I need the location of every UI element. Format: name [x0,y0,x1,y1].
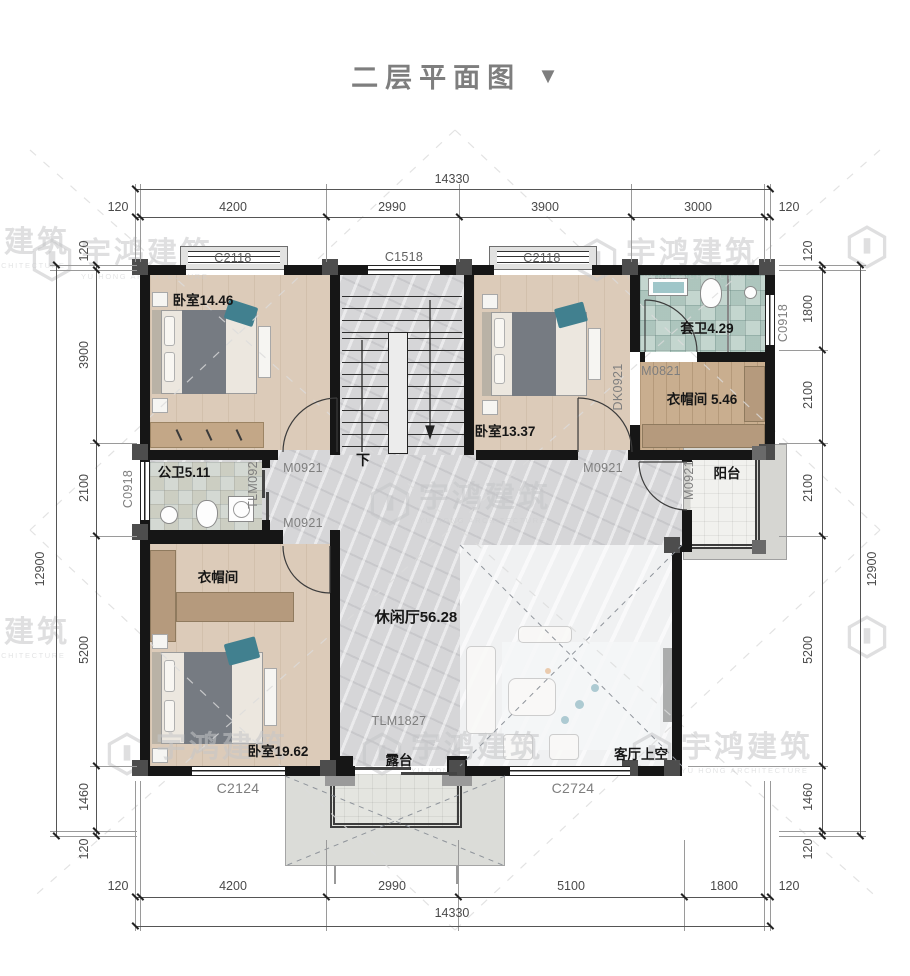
floor-plan-sheet: 二层平面图 ▼ [0,0,910,976]
dim-line [135,189,770,190]
dim-bottom-5: 120 [759,879,819,893]
dim-ext [779,536,828,537]
bed-headboard [482,312,491,396]
dim-bottom-overall: 14330 [412,906,492,920]
dim-line [135,217,770,218]
dim-left-0: 120 [77,221,91,281]
shower-partition [727,275,729,352]
terrace-step-line [334,866,336,884]
dim-ext [50,836,137,837]
sink [648,278,688,296]
wall [262,455,270,468]
dim-top-1: 4200 [203,200,263,214]
wall [140,520,150,776]
column [132,760,148,776]
dim-line [860,265,861,836]
triangle-down-icon: ▼ [537,63,559,89]
room-label-closet-right: 衣帽间 5.46 [642,388,762,408]
wall [476,450,578,460]
dim-top-overall: 14330 [412,172,492,186]
nightstand [482,400,498,415]
label-c2724: C2724 [513,780,633,796]
column [132,524,148,540]
label-tlm1827: TLM1827 [339,714,459,728]
dim-left-4: 1460 [77,767,91,827]
dim-ext [135,781,136,931]
label-m0921-master: M0921 [281,516,325,530]
dim-ext [326,184,327,262]
label-c0918-left: C0918 [121,459,135,519]
dim-right-0: 120 [801,221,815,281]
sliding-door-tlm0921 [266,492,269,520]
dim-ext [140,184,141,262]
sink [160,506,178,524]
bed-pillow [164,316,175,346]
brand-text: 宇鸿建筑YU HONG ARCHITECTURE [0,618,70,660]
dim-right-1: 1800 [801,279,815,339]
dim-right-4: 5200 [801,620,815,680]
void-overlay [460,545,672,766]
dim-top-2: 2990 [362,200,422,214]
label-c1518: C1518 [364,250,444,264]
dim-line [135,897,770,898]
column [132,444,148,460]
dim-bottom-2: 2990 [362,879,422,893]
bed-headboard [152,652,161,744]
bed-pillow [164,660,175,692]
wall [630,265,640,352]
balcony-post [752,540,766,554]
wall [262,520,270,536]
dim-bottom-4: 1800 [694,879,754,893]
bed-headboard [152,310,161,394]
balcony-post [752,446,766,460]
dim-right-6: 120 [801,819,815,879]
nightstand [152,398,168,413]
bed-bench [264,668,277,726]
column [759,259,775,275]
room-label-bedroom-tl: 卧室14.46 [143,289,263,309]
wall [640,352,645,362]
label-m0921-bedroom-tl: M0921 [281,461,325,475]
dim-bottom-0: 120 [88,879,148,893]
bed-pillow [164,700,175,732]
bed-blanket [182,310,226,394]
window-c0918-right [765,295,775,345]
column [664,537,680,553]
label-m0921-bedroom-tr: M0921 [581,461,625,475]
bed-pillow [494,318,505,348]
dim-ext [764,184,765,262]
label-m0921-balcony: M0921 [682,450,696,510]
dim-line [135,926,770,927]
watermark [845,615,889,659]
dim-top-0: 120 [88,200,148,214]
cabinet-mark [206,429,213,441]
dim-ext [135,184,136,262]
dim-ext [50,270,137,271]
dim-left-5: 120 [77,819,91,879]
wall [672,545,682,776]
label-c2124: C2124 [178,780,298,796]
window-c2724 [510,766,630,776]
column [320,760,336,776]
dim-left-1: 3900 [77,325,91,385]
watermark [845,225,889,269]
dim-left-2: 2100 [77,458,91,518]
dim-ext [779,443,828,444]
toilet [196,500,218,528]
column [322,259,338,275]
nightstand [152,748,168,763]
dim-right-overall: 12900 [865,534,879,604]
drawing-title: 二层平面图 [351,56,521,95]
dim-top-5: 120 [759,200,819,214]
wall [682,510,692,552]
room-label-bedroom-tr: 卧室13.37 [445,420,565,440]
wall [630,425,640,455]
nightstand [482,294,498,309]
room-label-void: 客厅上空 [581,743,701,763]
label-m0821: M0821 [621,364,701,378]
dim-line [96,265,97,836]
brand-logo-icon [845,615,889,659]
room-label-bath: 公卫5.11 [124,461,244,481]
dim-ext [140,781,141,931]
brand-en: YU HONG ARCHITECTURE [0,651,70,660]
stair-down-label: 下 [350,450,376,470]
dim-line [56,265,57,836]
label-tlm0921: TLM092 [246,455,260,515]
label-c0918-right: C0918 [776,293,790,353]
shower-head [744,286,757,299]
dim-bottom-3: 5100 [541,879,601,893]
room-label-ensuite: 套卫4.29 [657,317,757,337]
brand-logo-icon [30,238,74,282]
watermark: 宇鸿建筑YU HONG ARCHITECTURE [0,228,70,270]
tv-cabinet [150,422,264,448]
toilet [700,278,722,308]
dim-ext [459,184,460,262]
room-label-closet-master: 衣帽间 [158,566,278,586]
dim-ext [770,781,771,931]
brand-en: YU HONG ARCHITECTURE [681,766,813,775]
bed-bench [588,328,601,380]
brand-cn: 宇鸿建筑 [0,228,70,258]
drawing-title-row: 二层平面图 ▼ [0,56,910,95]
cabinet-mark [236,429,243,441]
wall [330,265,340,455]
cabinet-mark [176,429,183,441]
dim-bottom-1: 4200 [203,879,263,893]
room-label-master: 卧室19.62 [218,740,338,760]
bed-pillow [494,354,505,384]
stair-rail [388,332,408,454]
room-label-balcony: 阳台 [687,462,767,482]
label-dk0921: DK0921 [611,357,625,417]
dim-right-2: 2100 [801,365,815,425]
closet-shelf [176,592,294,622]
dim-ext [770,184,771,262]
bed-blanket [184,652,232,744]
sliding-door-tlm0921 [262,470,265,498]
label-c2118-right: C2118 [502,251,582,265]
stair-flight-left [342,338,388,454]
dim-left-3: 5200 [77,620,91,680]
sink-bowl [653,282,684,293]
wardrobe [642,424,765,448]
dim-top-3: 3900 [515,200,575,214]
label-c2118-left: C2118 [193,251,273,265]
dim-ext [631,184,632,262]
window-c2124 [192,766,285,776]
brand-cn: 宇鸿建筑 [0,618,70,648]
bed-bench [258,326,271,378]
dim-right-3: 2100 [801,458,815,518]
room-label-lounge: 休闲厅56.28 [336,606,496,627]
closet-wardrobe [150,550,176,642]
bed-blanket [512,312,556,396]
brand-logo-icon [845,225,889,269]
sliding-door-tlm1827 [401,772,457,775]
wall [765,345,775,460]
dim-right-5: 1460 [801,767,815,827]
nightstand [152,634,168,649]
dim-left-overall: 12900 [33,534,47,604]
wall [697,352,765,362]
watermark: 宇鸿建筑YU HONG ARCHITECTURE [0,618,70,660]
window-c1518 [368,265,440,275]
room-label-terrace: 露台 [359,749,439,769]
wall [592,265,775,275]
dim-ext [326,840,327,931]
dim-ext [684,840,685,931]
column [622,259,638,275]
bed-pillow [164,352,175,382]
dim-top-4: 3000 [668,200,728,214]
dim-ext [764,781,765,931]
brand-text: 宇鸿建筑YU HONG ARCHITECTURE [0,228,70,270]
